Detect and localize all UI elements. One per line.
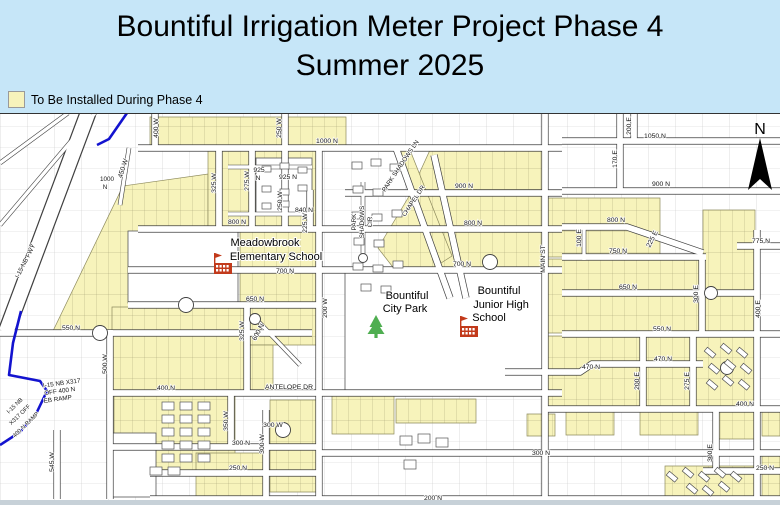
poi-label: Junior High	[473, 299, 529, 311]
street-label: 1000 N	[316, 138, 338, 145]
street-label: 100 E	[576, 229, 583, 247]
title-line-1: Bountiful Irrigation Meter Project Phase…	[0, 7, 780, 46]
street-label: ANTELOPE DR	[265, 384, 313, 391]
street-label: 300 E	[707, 444, 714, 462]
poi-label: Elementary School	[230, 251, 322, 263]
map-bottom-edge	[0, 500, 780, 505]
street-label: 250 W	[277, 191, 284, 211]
poi-label: City Park	[383, 303, 428, 315]
street-label: 300 N	[232, 440, 250, 447]
street-label: 350 W	[223, 411, 230, 431]
street-label: 300 W	[259, 434, 266, 454]
street-label: 400 W	[153, 118, 160, 138]
street-label: 925 N	[279, 174, 297, 181]
map-canvas: N 1000 N1050 N900 N900 N925 N925N840 N80…	[0, 113, 780, 505]
title-line-2: Summer 2025	[0, 46, 780, 85]
street-label: 400 N	[157, 385, 175, 392]
street-label: 750 N	[609, 248, 627, 255]
street-label: 900 N	[652, 181, 670, 188]
legend-label: To Be Installed During Phase 4	[31, 93, 203, 107]
street-label: 650 N	[246, 296, 264, 303]
street-label: MAIN ST	[540, 245, 547, 273]
street-label: 200 E	[626, 117, 633, 135]
street-label: 250 N	[229, 465, 247, 472]
street-label: 1000	[100, 176, 115, 183]
poi-label: Meadowbrook	[230, 237, 300, 249]
poi-label: Bountiful	[478, 285, 521, 297]
street-label: 800 N	[228, 219, 246, 226]
street-label: 470 N	[654, 356, 672, 363]
legend: To Be Installed During Phase 4	[8, 91, 203, 108]
street-label: 800 N	[464, 220, 482, 227]
street-label: 700 N	[276, 268, 294, 275]
street-label: N	[256, 175, 261, 182]
street-label: 400 N	[736, 401, 754, 408]
street-label: 700 N	[453, 261, 471, 268]
street-label: PARK	[351, 213, 358, 230]
street-label: 900 N	[455, 183, 473, 190]
street-label: 275 W	[244, 171, 251, 191]
street-label: 800 N	[607, 217, 625, 224]
street-label: 325 W	[239, 321, 246, 341]
street-label: 925	[253, 167, 265, 174]
street-label: 300 W	[263, 422, 283, 429]
map-header: Bountiful Irrigation Meter Project Phase…	[0, 0, 780, 113]
street-label: 200 E	[634, 372, 641, 390]
street-label: 775 N	[752, 238, 770, 245]
commercial-block	[108, 433, 156, 497]
street-label: 275 E	[684, 372, 691, 390]
street-label: 200 W	[322, 298, 329, 318]
street-label: 470 N	[582, 364, 600, 371]
street-label: 1050 N	[644, 133, 666, 140]
street-label: 550 N	[62, 325, 80, 332]
street-label: 840 N	[295, 207, 313, 214]
poi-label: Bountiful	[386, 290, 429, 302]
street-label: 250 N	[756, 465, 774, 472]
legend-swatch-phase4	[8, 91, 25, 108]
map-title: Bountiful Irrigation Meter Project Phase…	[0, 0, 780, 85]
street-label: 225 W	[302, 213, 309, 233]
street-label: 500 W	[102, 354, 109, 374]
street-label: CIR	[367, 216, 374, 227]
street-label: 300 E	[693, 285, 700, 303]
street-label: N	[103, 184, 108, 191]
street-label: 545 W	[49, 452, 56, 472]
street-label: SHADOWS	[359, 206, 366, 239]
street-label: 170 E	[612, 150, 619, 168]
street-label: 325 W	[211, 173, 218, 193]
poi-label: School	[472, 312, 506, 324]
street-label: 250 W	[276, 118, 283, 138]
street-label: 650 N	[619, 284, 637, 291]
street-label: 400 E	[755, 300, 762, 318]
street-label: 300 N	[532, 450, 550, 457]
map-document: Bountiful Irrigation Meter Project Phase…	[0, 0, 780, 505]
street-label: 550 N	[653, 326, 671, 333]
north-arrow-label: N	[754, 121, 766, 138]
